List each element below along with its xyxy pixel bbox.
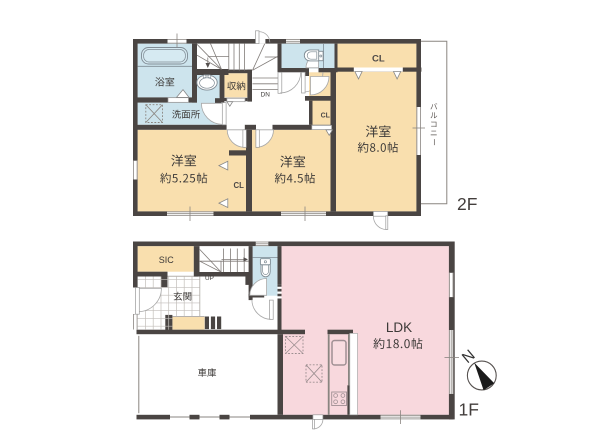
svg-text:CL: CL — [233, 181, 244, 190]
svg-text:UP: UP — [205, 275, 214, 282]
svg-text:LDK: LDK — [386, 320, 412, 335]
svg-text:SIC: SIC — [159, 255, 175, 265]
svg-text:DN: DN — [261, 92, 271, 99]
svg-text:1F: 1F — [459, 400, 479, 420]
svg-text:2F: 2F — [457, 194, 477, 214]
svg-text:CL: CL — [372, 54, 385, 65]
svg-text:CL: CL — [321, 112, 331, 119]
